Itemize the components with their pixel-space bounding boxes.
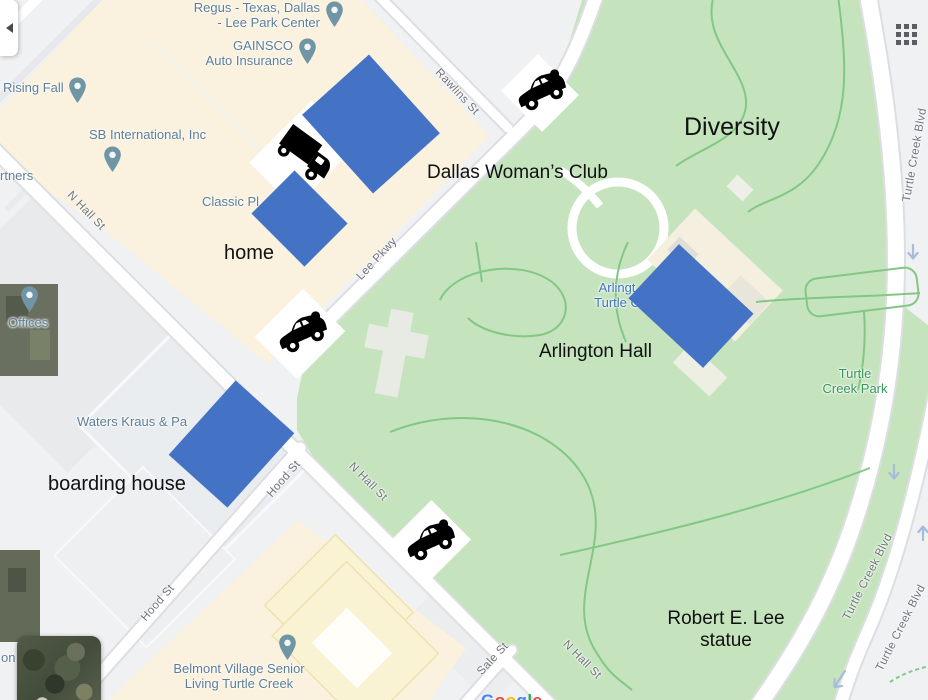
google-logo-letter: o: [506, 691, 517, 700]
satellite-toggle[interactable]: Satellite: [17, 636, 101, 700]
map-base: [0, 0, 928, 700]
satellite-thumbnail: [17, 636, 101, 700]
google-logo-letter: g: [517, 691, 528, 700]
google-logo-letter: e: [533, 691, 543, 700]
apps-grid-icon[interactable]: [896, 24, 917, 45]
google-logo-letter: o: [495, 691, 506, 700]
left-arrow-icon: [6, 23, 13, 33]
google-logo: Google: [481, 691, 543, 700]
collapse-panel-button[interactable]: [0, 0, 18, 56]
google-logo-letter: G: [481, 691, 495, 700]
map-canvas[interactable]: Regus - Texas, Dallas - Lee Park CenterG…: [0, 0, 928, 700]
